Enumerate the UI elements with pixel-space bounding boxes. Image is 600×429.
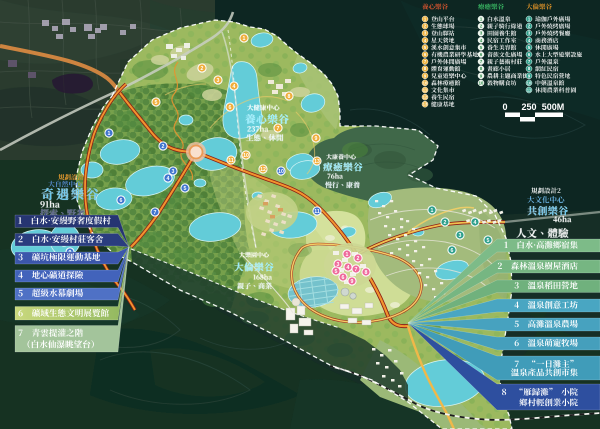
svg-text:4: 4 [167,176,170,182]
svg-text:4: 4 [233,84,236,90]
svg-text:8: 8 [365,270,368,276]
svg-text:9: 9 [351,279,354,285]
svg-text:5: 5 [155,100,158,106]
svg-text:3: 3 [459,233,462,239]
svg-text:2: 2 [444,220,447,226]
svg-text:1: 1 [243,36,246,42]
svg-text:1: 1 [346,252,349,258]
svg-text:5: 5 [335,269,338,275]
svg-text:250: 250 [521,102,536,112]
svg-text:9: 9 [315,136,318,142]
svg-text:2: 2 [357,256,360,262]
svg-text:3: 3 [172,169,175,175]
svg-text:7: 7 [154,210,157,216]
svg-text:6: 6 [120,198,123,204]
svg-text:6: 6 [451,248,454,254]
svg-text:7: 7 [277,126,280,132]
svg-text:2: 2 [201,66,204,72]
svg-text:12: 12 [423,95,428,100]
svg-text:0: 0 [502,102,507,112]
svg-text:1: 1 [108,131,111,137]
svg-text:3: 3 [217,78,220,84]
svg-text:4: 4 [474,220,477,226]
svg-text:5: 5 [184,186,187,192]
svg-text:5: 5 [487,238,490,244]
svg-text:4: 4 [347,265,350,271]
svg-text:7: 7 [355,267,358,273]
svg-text:10: 10 [527,80,532,85]
svg-text:12: 12 [260,167,266,173]
svg-text:11: 11 [228,158,234,164]
svg-text:1: 1 [431,208,434,214]
svg-text:10: 10 [479,80,484,85]
svg-text:10: 10 [423,80,428,85]
svg-text:2: 2 [162,144,165,150]
svg-text:6: 6 [342,275,345,281]
svg-text:13: 13 [314,159,320,165]
svg-text:11: 11 [314,209,320,215]
svg-text:10: 10 [243,153,249,159]
svg-text:11: 11 [423,88,428,93]
svg-text:11: 11 [527,88,532,93]
svg-text:500M: 500M [542,102,565,112]
svg-text:6: 6 [229,105,232,111]
svg-text:10: 10 [278,169,284,175]
svg-text:13: 13 [423,102,428,107]
svg-text:8: 8 [288,94,291,100]
